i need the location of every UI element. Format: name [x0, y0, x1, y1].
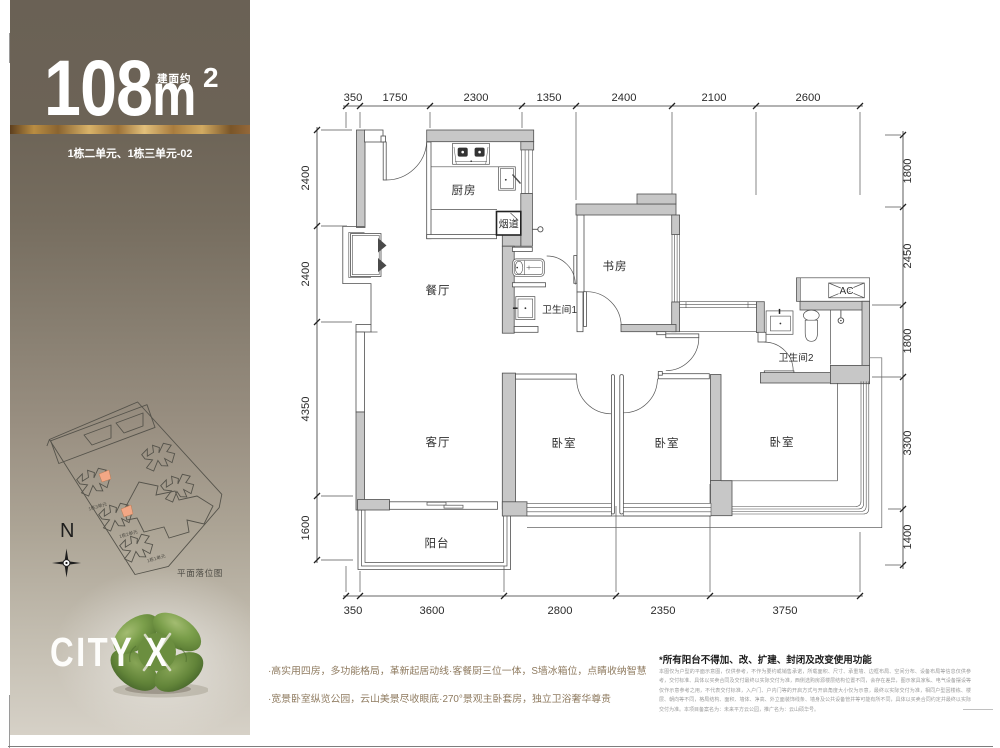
svg-text:烟道: 烟道 — [499, 218, 519, 231]
svg-text:卫生间1: 卫生间1 — [542, 303, 577, 316]
svg-text:1750: 1750 — [383, 92, 408, 104]
svg-text:AC: AC — [840, 286, 854, 297]
svg-text:350: 350 — [344, 605, 363, 617]
svg-text:卫生间2: 卫生间2 — [779, 351, 814, 364]
svg-text:4350: 4350 — [300, 397, 312, 422]
svg-text:1800: 1800 — [902, 159, 914, 184]
svg-text:3750: 3750 — [773, 605, 798, 617]
svg-text:2400: 2400 — [300, 166, 312, 191]
svg-text:厨房: 厨房 — [452, 184, 477, 197]
svg-text:卧室: 卧室 — [655, 436, 680, 450]
svg-text:3600: 3600 — [420, 605, 445, 617]
svg-text:2300: 2300 — [464, 92, 489, 104]
svg-text:2400: 2400 — [300, 262, 312, 287]
svg-text:2100: 2100 — [702, 92, 727, 104]
svg-text:3300: 3300 — [902, 431, 914, 456]
svg-text:2800: 2800 — [548, 605, 573, 617]
svg-text:1600: 1600 — [300, 516, 312, 541]
svg-text:餐厅: 餐厅 — [426, 283, 451, 297]
svg-text:阳台: 阳台 — [425, 536, 450, 550]
svg-text:客厅: 客厅 — [426, 435, 451, 449]
svg-text:1800: 1800 — [902, 329, 914, 354]
svg-text:书房: 书房 — [603, 260, 628, 273]
svg-text:350: 350 — [344, 92, 363, 104]
svg-text:卧室: 卧室 — [770, 435, 795, 449]
svg-text:2350: 2350 — [651, 605, 676, 617]
svg-text:2400: 2400 — [612, 92, 637, 104]
svg-text:2600: 2600 — [796, 92, 821, 104]
svg-text:1350: 1350 — [537, 92, 562, 104]
svg-text:卧室: 卧室 — [552, 436, 577, 450]
svg-text:1400: 1400 — [902, 525, 914, 550]
svg-text:2450: 2450 — [902, 244, 914, 269]
